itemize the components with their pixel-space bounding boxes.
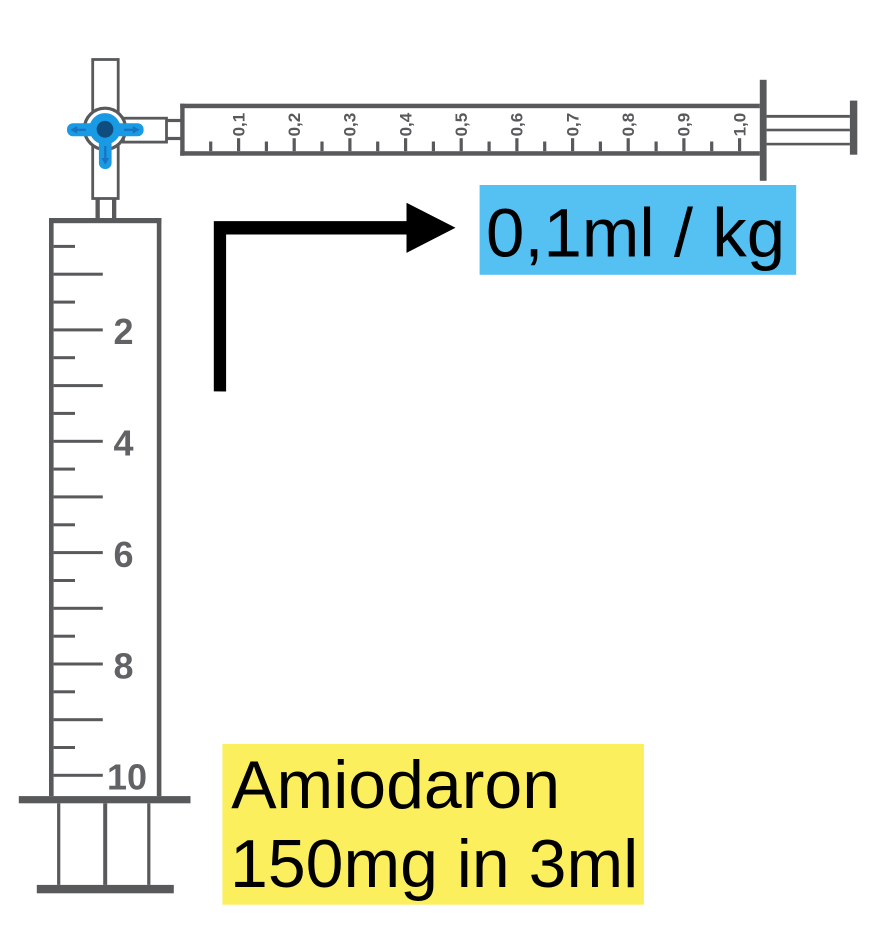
svg-text:0,7: 0,7 (563, 113, 582, 137)
svg-text:0,4: 0,4 (396, 112, 415, 136)
svg-text:8: 8 (113, 645, 133, 686)
svg-text:0,5: 0,5 (452, 113, 471, 137)
svg-text:1,0: 1,0 (730, 113, 749, 137)
svg-text:4: 4 (113, 423, 133, 464)
svg-text:0,1: 0,1 (229, 113, 248, 137)
svg-text:0,6: 0,6 (508, 113, 527, 137)
svg-text:0,3: 0,3 (341, 113, 360, 137)
svg-text:0,8: 0,8 (619, 113, 638, 137)
svg-text:0,2: 0,2 (285, 113, 304, 137)
svg-text:0,1ml / kg: 0,1ml / kg (486, 195, 785, 272)
svg-text:2: 2 (113, 311, 133, 352)
svg-text:6: 6 (113, 534, 133, 575)
svg-text:0,9: 0,9 (675, 113, 694, 137)
svg-text:10: 10 (107, 757, 147, 798)
svg-text:150mg in 3ml: 150mg in 3ml (230, 826, 638, 902)
svg-text:Amiodaron: Amiodaron (231, 747, 560, 823)
